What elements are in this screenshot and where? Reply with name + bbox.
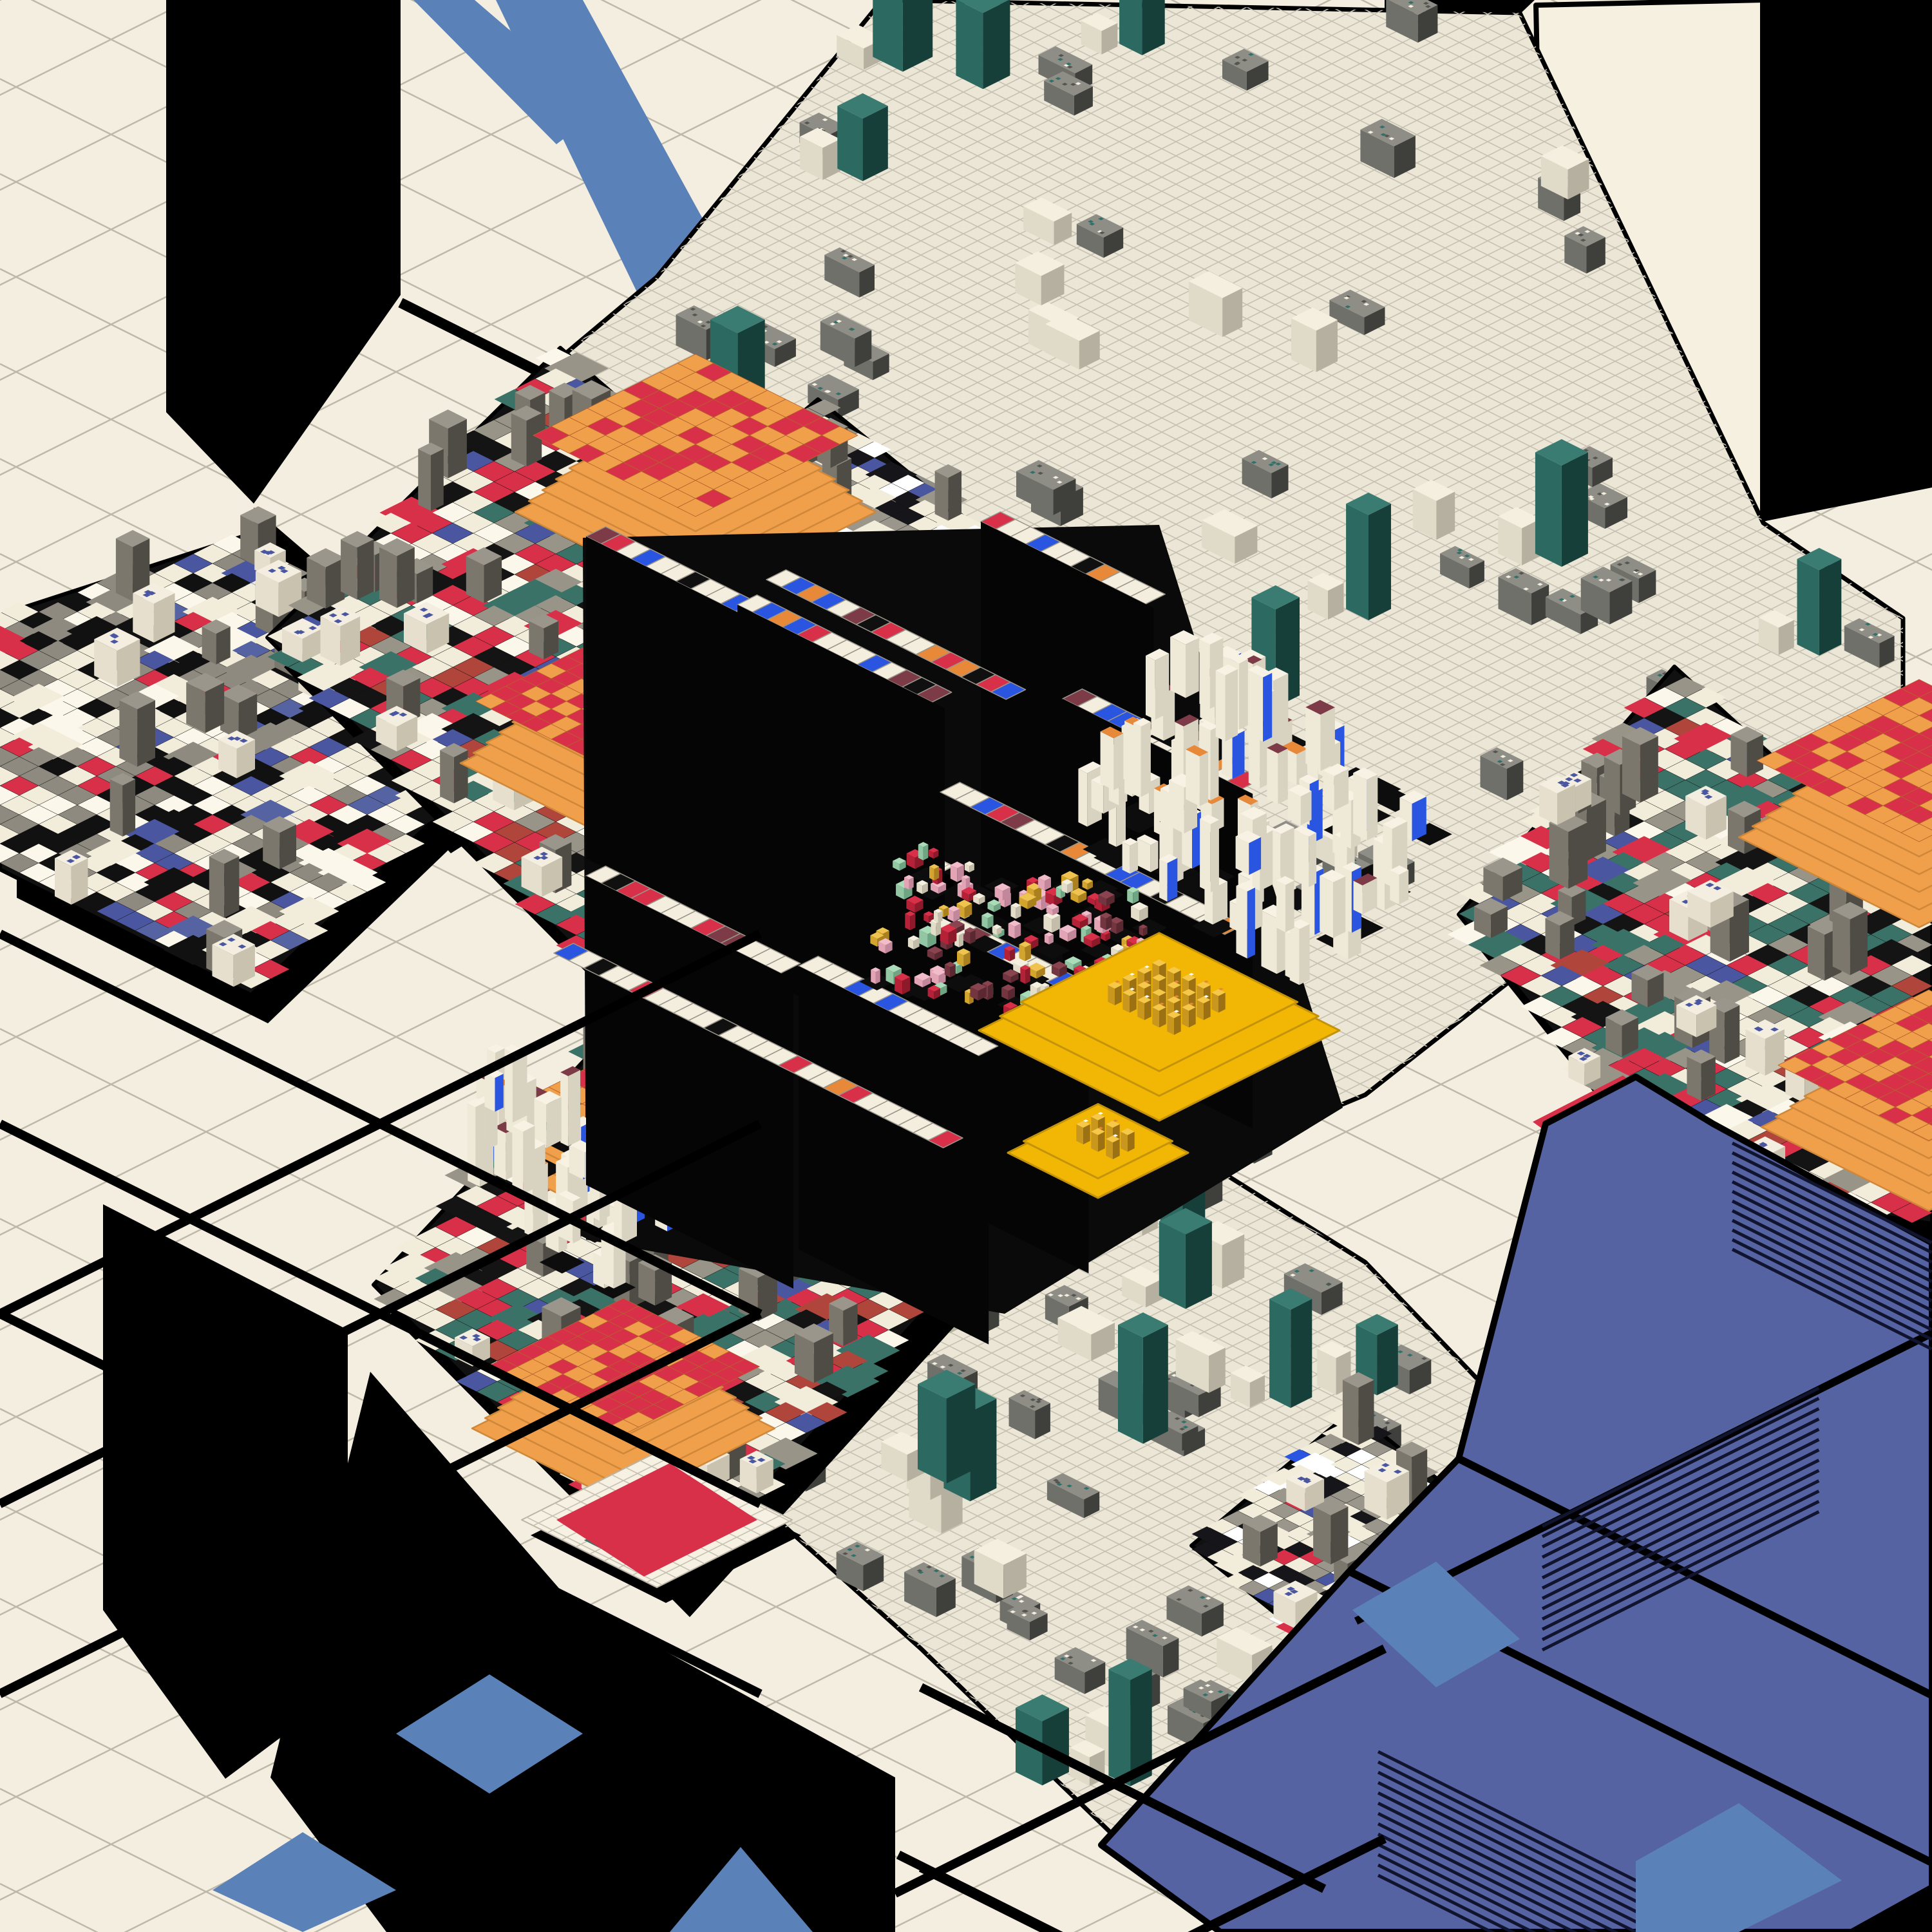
artwork-stage	[0, 0, 1932, 1932]
artwork-canvas	[0, 0, 1932, 1932]
black-cube-side-top-right	[1763, 0, 1932, 522]
